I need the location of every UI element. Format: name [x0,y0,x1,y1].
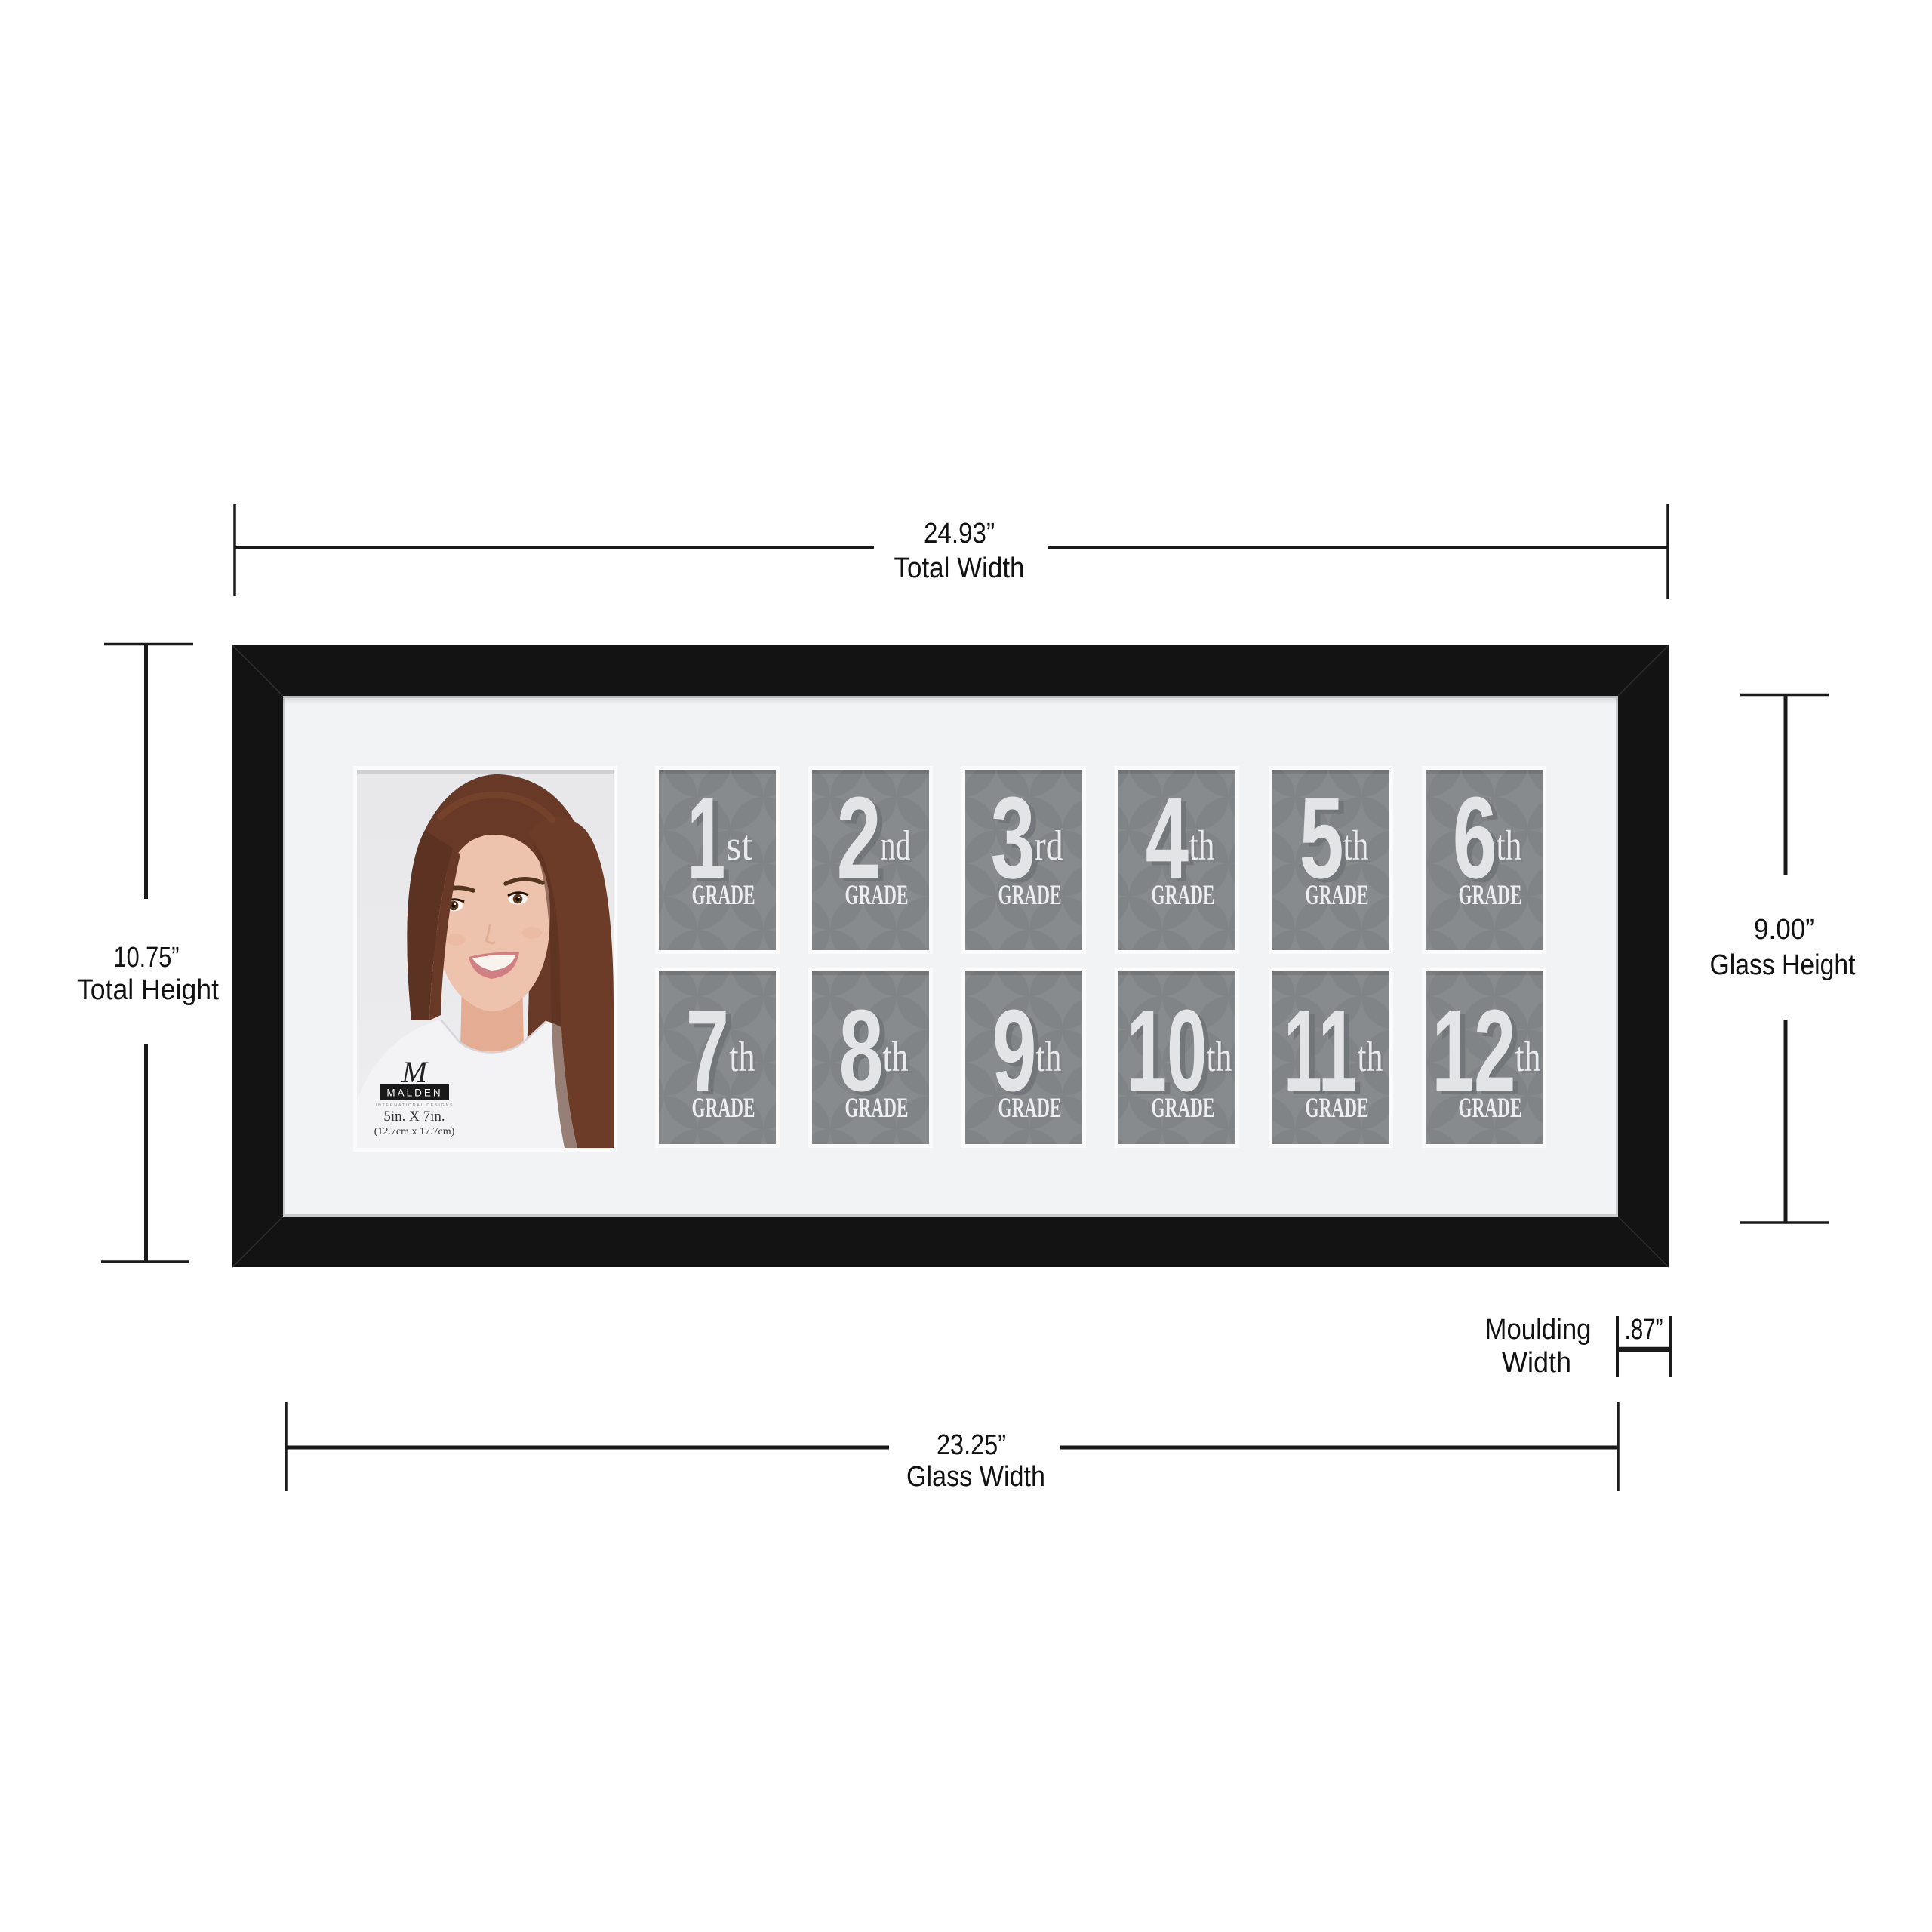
svg-text:GRADE: GRADE [1306,1093,1369,1124]
svg-text:st: st [726,823,752,869]
svg-text:10.75”: 10.75” [114,942,180,974]
svg-text:th: th [1358,1034,1383,1081]
svg-text:Total Width: Total Width [894,552,1025,584]
svg-text:th: th [1207,1034,1232,1081]
svg-text:GRADE: GRADE [692,880,755,911]
svg-text:th: th [1343,823,1369,869]
svg-text:GRADE: GRADE [1152,880,1215,911]
svg-text:9.00”: 9.00” [1754,914,1814,946]
svg-text:INTERNATIONAL DESIGNS: INTERNATIONAL DESIGNS [376,1103,454,1108]
svg-text:rd: rd [1035,823,1063,869]
svg-text:MALDEN: MALDEN [386,1088,442,1099]
svg-text:Total Height: Total Height [77,974,219,1006]
svg-text:(12.7cm x 17.7cm): (12.7cm x 17.7cm) [374,1126,455,1137]
svg-text:GRADE: GRADE [998,1093,1062,1124]
svg-text:24.93”: 24.93” [924,518,995,549]
svg-text:th: th [1497,823,1522,869]
svg-text:GRADE: GRADE [1152,1093,1215,1124]
svg-text:nd: nd [881,823,911,869]
svg-text:Glass Width: Glass Width [906,1461,1045,1493]
svg-text:th: th [1036,1034,1062,1081]
svg-text:GRADE: GRADE [692,1093,755,1124]
svg-text:GRADE: GRADE [845,880,909,911]
svg-text:Glass Height: Glass Height [1710,949,1856,981]
svg-text:.87”: .87” [1625,1314,1663,1346]
svg-text:GRADE: GRADE [998,880,1062,911]
svg-text:th: th [1515,1034,1541,1081]
svg-text:GRADE: GRADE [845,1093,909,1124]
svg-text:GRADE: GRADE [1459,1093,1522,1124]
svg-text:23.25”: 23.25” [937,1429,1006,1461]
svg-text:Width: Width [1502,1347,1571,1379]
svg-text:GRADE: GRADE [1306,880,1369,911]
svg-text:M: M [401,1055,429,1089]
svg-text:th: th [1189,823,1215,869]
svg-text:GRADE: GRADE [1459,880,1522,911]
svg-text:5in. X 7in.: 5in. X 7in. [383,1109,445,1124]
svg-text:Moulding: Moulding [1485,1314,1592,1346]
svg-text:th: th [730,1034,755,1081]
svg-text:th: th [883,1034,909,1081]
